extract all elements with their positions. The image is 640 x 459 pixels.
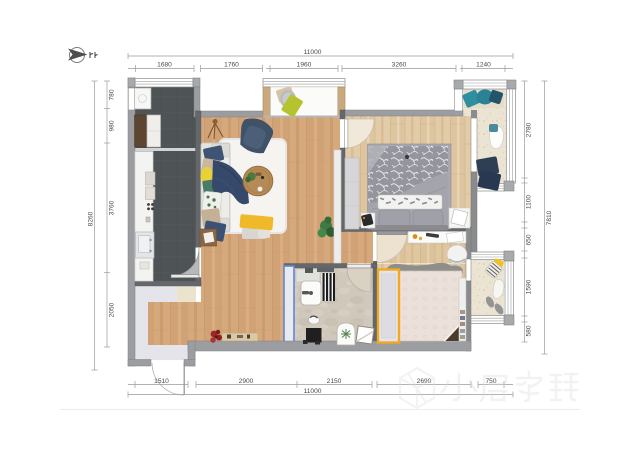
svg-text:2150: 2150 — [327, 378, 342, 385]
svg-text:8260: 8260 — [88, 211, 95, 226]
svg-text:1590: 1590 — [526, 279, 533, 294]
svg-text:3760: 3760 — [109, 200, 116, 215]
svg-text:1680: 1680 — [157, 62, 172, 69]
svg-text:1240: 1240 — [476, 62, 491, 69]
svg-text:11000: 11000 — [304, 388, 322, 395]
svg-text:3260: 3260 — [392, 62, 407, 69]
svg-text:1100: 1100 — [526, 195, 533, 210]
svg-text:2050: 2050 — [109, 302, 116, 317]
svg-text:2900: 2900 — [239, 378, 254, 385]
svg-text:650: 650 — [526, 234, 533, 245]
svg-text:1960: 1960 — [297, 62, 312, 69]
svg-text:7810: 7810 — [546, 210, 553, 225]
svg-text:580: 580 — [526, 325, 533, 336]
svg-text:980: 980 — [109, 120, 116, 131]
svg-text:11000: 11000 — [304, 49, 322, 56]
svg-text:1510: 1510 — [154, 378, 169, 385]
svg-text:1760: 1760 — [224, 62, 239, 69]
svg-text:780: 780 — [109, 89, 116, 100]
svg-text:2780: 2780 — [526, 122, 533, 137]
